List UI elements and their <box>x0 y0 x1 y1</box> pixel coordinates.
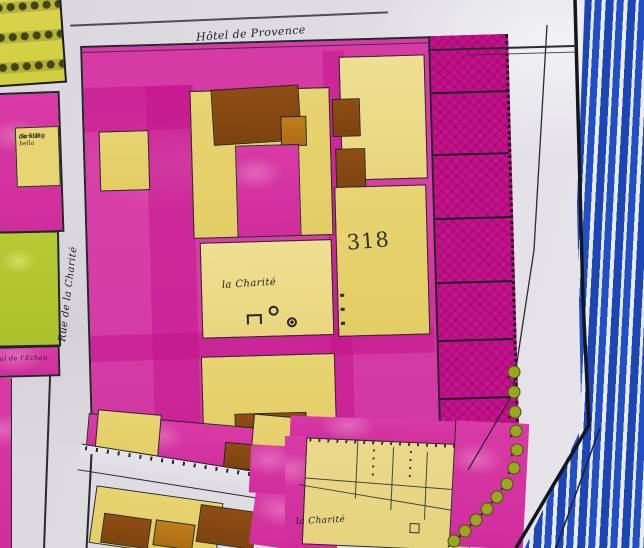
tree-icon <box>459 525 471 537</box>
tree-icon <box>481 503 493 515</box>
tree-icon <box>508 386 520 398</box>
tree-icon <box>508 462 520 474</box>
tree-icon <box>510 425 522 437</box>
tree-icon <box>508 366 520 378</box>
tree-icon <box>491 491 503 503</box>
tree-icon <box>448 535 460 547</box>
tree-icon <box>501 478 513 490</box>
quay-edge-line <box>468 25 547 470</box>
quay-tree-column <box>448 366 523 547</box>
watercolor-city-plan: Giraud de Mont bella du 5 Trg al de l'Ec… <box>0 0 644 548</box>
tree-icon <box>470 514 482 526</box>
quay-overlay <box>0 0 644 548</box>
tree-icon <box>509 406 521 418</box>
river-bank-line <box>516 0 589 548</box>
tree-icon <box>511 444 523 456</box>
